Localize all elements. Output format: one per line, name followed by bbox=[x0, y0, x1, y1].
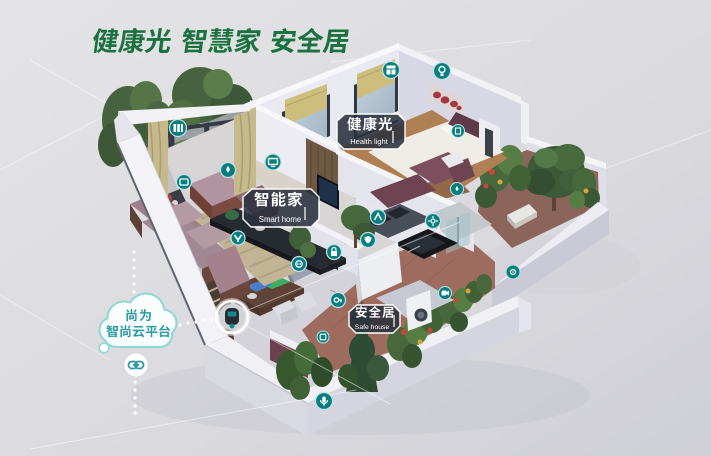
svg-text:Smart home: Smart home bbox=[259, 215, 301, 224]
svg-text:Safe house: Safe house bbox=[355, 324, 390, 331]
svg-text:Health light: Health light bbox=[350, 137, 388, 146]
